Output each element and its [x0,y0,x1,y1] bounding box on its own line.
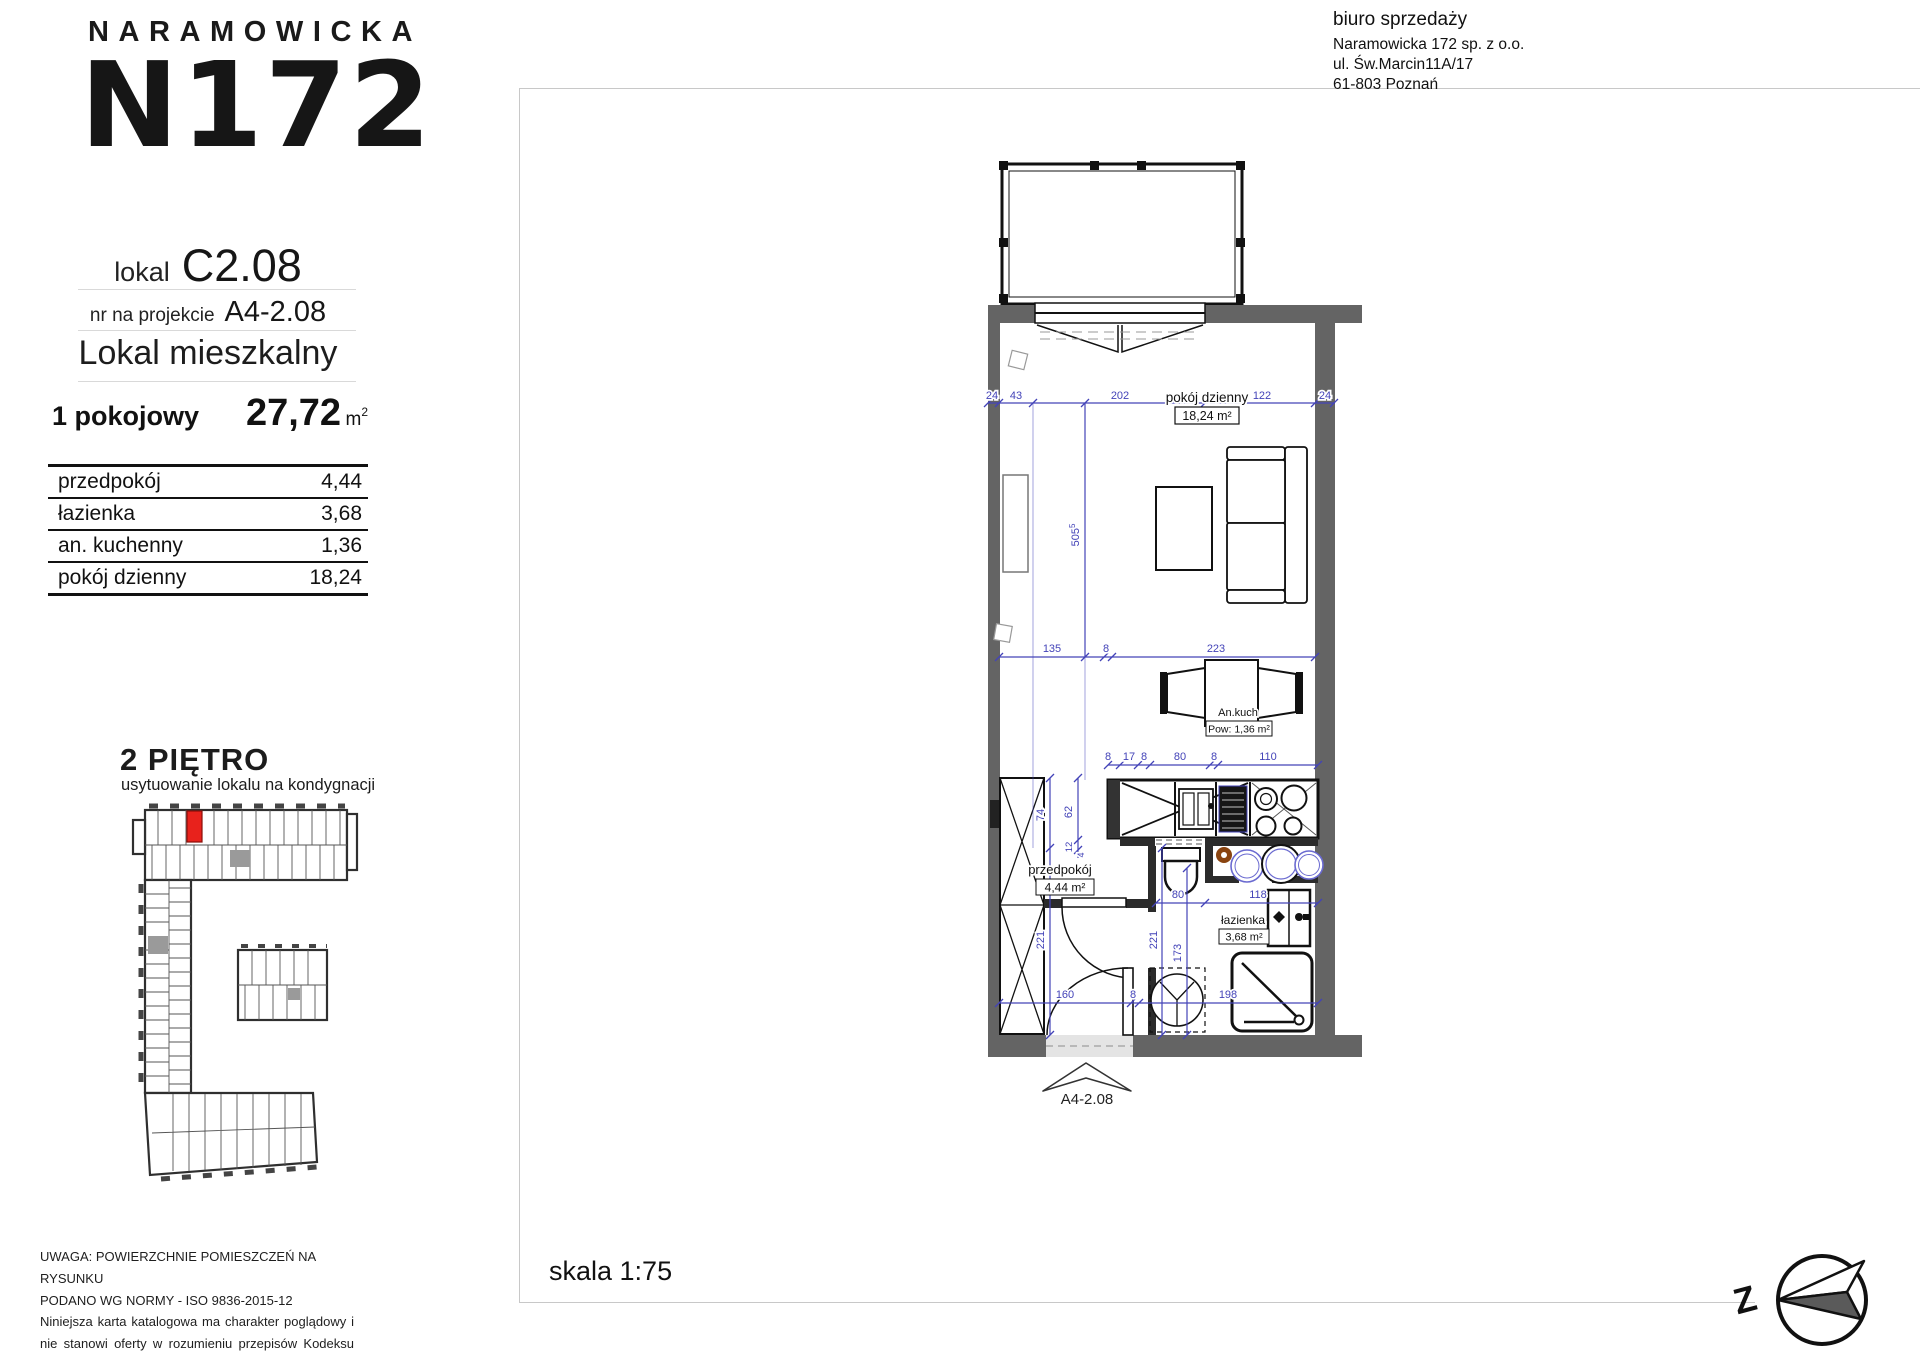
sofa [1227,447,1307,603]
svg-text:110: 110 [1259,751,1277,763]
svg-text:221: 221 [1035,931,1047,949]
project-number-label: nr na projekcie [90,305,215,327]
svg-text:12: 12 [1064,842,1075,853]
svg-text:122: 122 [1253,390,1271,402]
svg-text:43: 43 [1010,390,1022,402]
lokal-number: C2.08 [182,240,302,292]
wall-top-right [1205,305,1362,323]
svg-text:8: 8 [1105,751,1111,763]
room-area: 1,36 [265,530,368,562]
summary-row: 1 pokojowy 27,72 m2 [52,394,368,432]
svg-text:4: 4 [1076,852,1086,857]
riser-box [990,800,999,828]
room-name: an. kuchenny [48,530,265,562]
project-number-row: nr na projekcie A4-2.08 [58,296,358,329]
room-name: pokój dzienny [48,562,265,595]
building-bottom-wing [145,1093,317,1175]
kitchen-counter [1108,780,1318,838]
table-row: łazienka3,68 [48,498,368,530]
coffee-table [1156,487,1212,570]
frame-left-line [519,88,520,1302]
room-areas-table: przedpokój4,44 łazienka3,68 an. kuchenny… [48,464,368,596]
svg-text:135: 135 [1043,643,1061,655]
divider [78,330,356,331]
svg-text:80: 80 [1172,889,1184,901]
svg-text:24: 24 [1319,390,1331,402]
svg-text:223: 223 [1207,643,1225,655]
sales-office-block: biuro sprzedaży Naramowicka 172 sp. z o.… [1333,8,1524,95]
room-area: 18,24 [265,562,368,595]
svg-text:Pow: 1,36 m²: Pow: 1,36 m² [1208,724,1270,736]
living-room-label: pokój dzienny [1166,390,1249,405]
divider [78,381,356,382]
svg-text:8: 8 [1141,751,1147,763]
office-line: 61-803 Poznań [1333,75,1524,95]
svg-text:118: 118 [1249,889,1267,901]
apartment-floor-plan: 24 43 202 122 24 135 8 223 8 17 8 80 8 1… [940,150,1380,1130]
disclaimer-line: PODANO WG NORMY - ISO 9836-2015-12 [40,1290,354,1312]
katalog-page: NARAMOWICKA N172 lokal C2.08 nr na proje… [0,0,1920,1358]
svg-text:17: 17 [1123,751,1135,763]
room-area: 3,68 [265,498,368,530]
svg-text:24: 24 [986,390,998,402]
washer-circles [1231,845,1323,883]
lokal-label: lokal [114,257,170,288]
faucet [1208,803,1214,809]
svg-text:202: 202 [1111,390,1129,402]
svg-text:8: 8 [1211,751,1217,763]
svg-text:8: 8 [1130,989,1136,1001]
svg-text:198: 198 [1219,989,1237,1001]
total-area: 27,72 m2 [246,394,368,432]
office-line: Naramowicka 172 sp. z o.o. [1333,35,1524,55]
office-line: biuro sprzedaży [1333,8,1524,32]
table-row: pokój dzienny18,24 [48,562,368,595]
svg-text:160: 160 [1056,989,1074,1001]
shower [1232,953,1312,1031]
unit-number-label: A4-2.08 [1061,1091,1114,1108]
svg-text:173: 173 [1172,944,1184,962]
frame-top-line [519,88,1920,89]
svg-text:221: 221 [1148,931,1160,949]
unit-entrance-marker: A4-2.08 [1043,1063,1131,1108]
entrance-door-swing [1047,968,1128,1035]
floor-location-plan [45,798,395,1190]
floor-subtitle: usytuowanie lokalu na kondygnacji [121,776,375,795]
lokal-row: lokal C2.08 [58,240,358,292]
svg-text:3,68 m²: 3,68 m² [1225,932,1263,944]
ceiling-symbol [994,624,1013,643]
ceiling-symbol [1008,350,1027,369]
bath-label: łazienka [1221,913,1265,927]
svg-text:4,44 m²: 4,44 m² [1045,881,1086,895]
office-line: ul. Św.Marcin11A/17 [1333,55,1524,75]
frame-bottom-line [519,1302,1755,1303]
core-block [288,988,300,1000]
project-logo: N172 [80,44,370,168]
room-name: przedpokój [48,466,265,499]
core-block [230,850,250,867]
core-block [148,936,168,954]
wall-bottom [988,1035,1362,1057]
svg-text:80: 80 [1174,751,1186,763]
wall-left [988,305,1000,1057]
disclaimer: UWAGA: POWIERZCHNIE POMIESZCZEŃ NA RYSUN… [40,1246,354,1358]
disclaimer-line: UWAGA: POWIERZCHNIE POMIESZCZEŃ NA RYSUN… [40,1246,354,1290]
room-area: 4,44 [265,466,368,499]
room-name: łazienka [48,498,265,530]
balcony [999,161,1245,304]
svg-text:62: 62 [1063,806,1075,818]
scale-label: skala 1:75 [549,1256,672,1287]
compass-icon: Z [1690,1243,1920,1358]
compass-west-letter: Z [1729,1277,1761,1322]
entrance-chevron [1043,1063,1131,1091]
building-end-bump [347,814,357,870]
highlighted-unit [187,811,202,842]
kitchen-label: An.kuch [1218,707,1258,719]
divider [78,289,356,290]
toilet-tank [1162,848,1200,861]
balcony-window [1035,303,1205,352]
rooms-count: 1 pokojowy [52,401,199,432]
svg-text:8: 8 [1103,643,1109,655]
building-stair-bump [133,820,145,854]
interior-door-leaf [1062,898,1126,907]
building-left-wing [145,880,191,1093]
table-row: an. kuchenny1,36 [48,530,368,562]
floor-title: 2 PIĘTRO [120,742,269,778]
unit-type: Lokal mieszkalny [58,334,358,373]
hall-label: przedpokój [1028,862,1092,877]
svg-text:5055: 5055 [1068,523,1082,546]
disclaimer-line: Niniejsza karta katalogowa ma charakter … [40,1311,354,1358]
entrance-door-leaf [1123,968,1133,1035]
table-row: przedpokój4,44 [48,466,368,499]
cabinet [1003,475,1028,572]
svg-text:74: 74 [1035,809,1047,821]
svg-text:18,24 m²: 18,24 m² [1182,409,1231,423]
project-number-value: A4-2.08 [225,296,327,329]
wall-right [1315,318,1335,1057]
